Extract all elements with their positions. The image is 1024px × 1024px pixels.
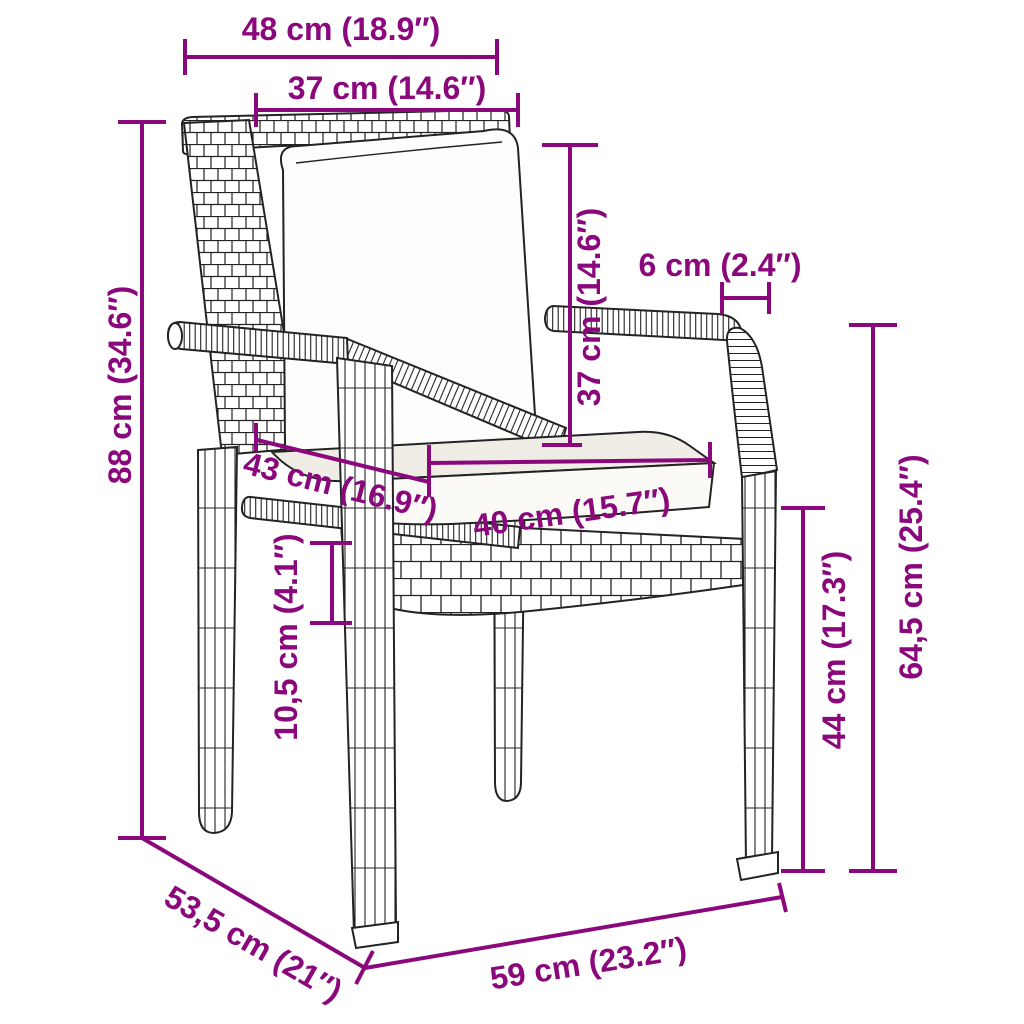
dim-overall-height-label: 88 cm (34.6″) [102, 286, 138, 485]
chair-front-right-leg [742, 471, 776, 865]
dim-armrest-height-line [849, 325, 897, 871]
dim-armrest-width-label: 6 cm (2.4″) [639, 247, 802, 283]
dim-armrest-height-label: 64,5 cm (25.4″) [893, 454, 929, 679]
chair-rear-left-leg [198, 447, 237, 833]
dim-backrest-inner-width-label: 37 cm (14.6″) [288, 70, 487, 106]
dim-armrest-height: 64,5 cm (25.4″) [849, 325, 929, 871]
dim-overall-height: 88 cm (34.6″) [102, 122, 166, 838]
dim-seat-height-label: 44 cm (17.3″) [816, 551, 852, 750]
dim-armrest-width-line [722, 282, 769, 314]
dim-overall-top-width-label: 48 cm (18.9″) [242, 11, 441, 47]
dim-overall-front-width-label: 59 cm (23.2″) [487, 930, 689, 997]
dim-seat-height: 44 cm (17.3″) [781, 508, 852, 871]
chair-front-right-foot [737, 852, 778, 880]
dim-armrest-width: 6 cm (2.4″) [639, 247, 802, 314]
diagram-canvas: 48 cm (18.9″) 37 cm (14.6″) 6 cm (2.4″) … [0, 0, 1024, 1024]
dim-back-cushion-height: 37 cm (14.6″) [542, 145, 607, 445]
dim-seat-frame-thickness: 10,5 cm (4.1″) [268, 533, 352, 740]
dim-back-cushion-height-label: 37 cm (14.6″) [571, 208, 607, 407]
chair-left-armrest-cap [168, 323, 182, 349]
dim-overall-depth: 53,5 cm (21″) [142, 838, 373, 1009]
chair-right-arm-support [727, 328, 777, 478]
dim-overall-top-width: 48 cm (18.9″) [185, 11, 497, 75]
dim-seat-frame-thickness-label: 10,5 cm (4.1″) [268, 533, 304, 740]
chair-front-left-leg [337, 358, 396, 934]
dim-overall-front-width: 59 cm (23.2″) [365, 883, 786, 996]
product-dimension-diagram: 48 cm (18.9″) 37 cm (14.6″) 6 cm (2.4″) … [0, 0, 1024, 1024]
